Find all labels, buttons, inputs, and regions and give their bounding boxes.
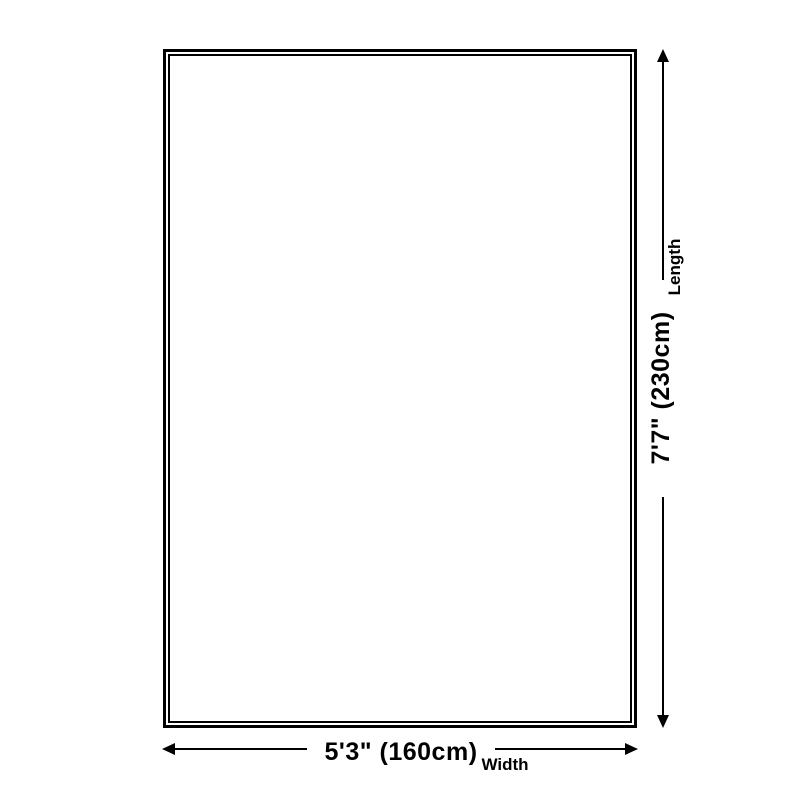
rug-outline-inner-border	[168, 54, 632, 723]
length-arrow-lower-line	[662, 497, 664, 715]
width-arrow-left-line	[174, 748, 307, 750]
width-value: 5'3" (160cm)	[301, 738, 501, 766]
length-arrow-down-icon	[657, 715, 669, 728]
length-value: 7'7" (230cm)	[647, 288, 675, 488]
width-arrow-right-icon	[625, 743, 638, 755]
width-caption: Width	[475, 756, 535, 774]
width-arrow-right-line	[495, 748, 625, 750]
rug-outline-outer-border	[163, 49, 637, 728]
rug-dimension-diagram: Length 7'7" (230cm) 5'3" (160cm) Width	[0, 0, 800, 800]
length-arrow-upper-line	[662, 60, 664, 280]
